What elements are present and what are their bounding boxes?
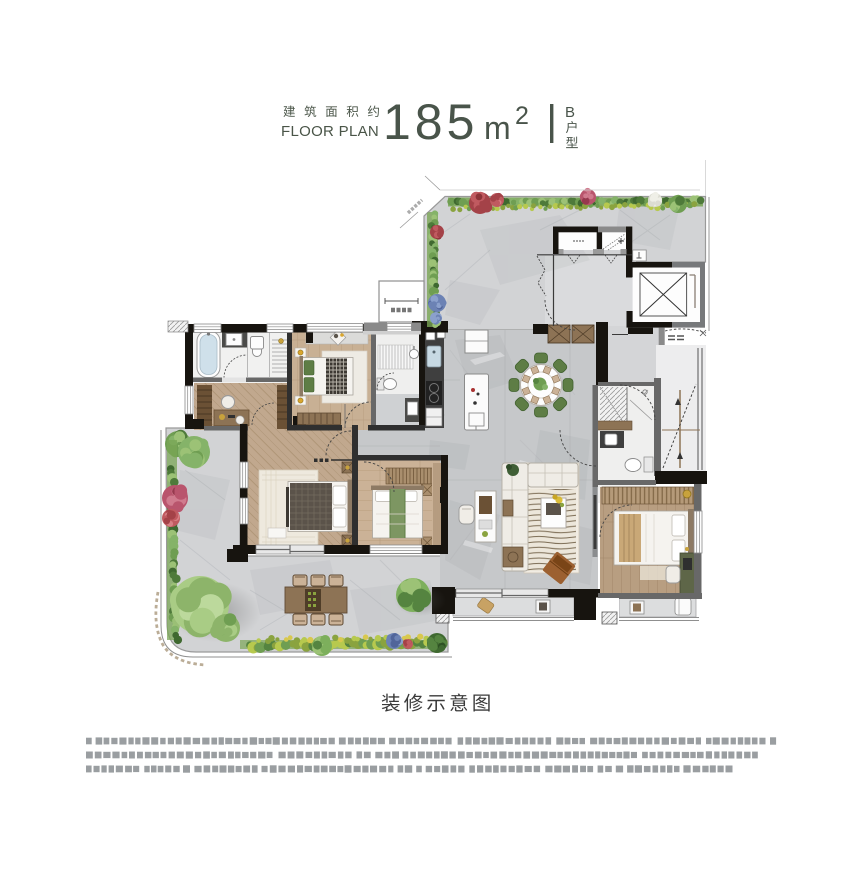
svg-text:FLOOR PLAN: FLOOR PLAN [281, 123, 379, 140]
svg-text:2: 2 [515, 102, 529, 130]
svg-text:185: 185 [383, 94, 478, 150]
svg-text:B: B [565, 104, 575, 121]
svg-text:m: m [484, 110, 511, 146]
